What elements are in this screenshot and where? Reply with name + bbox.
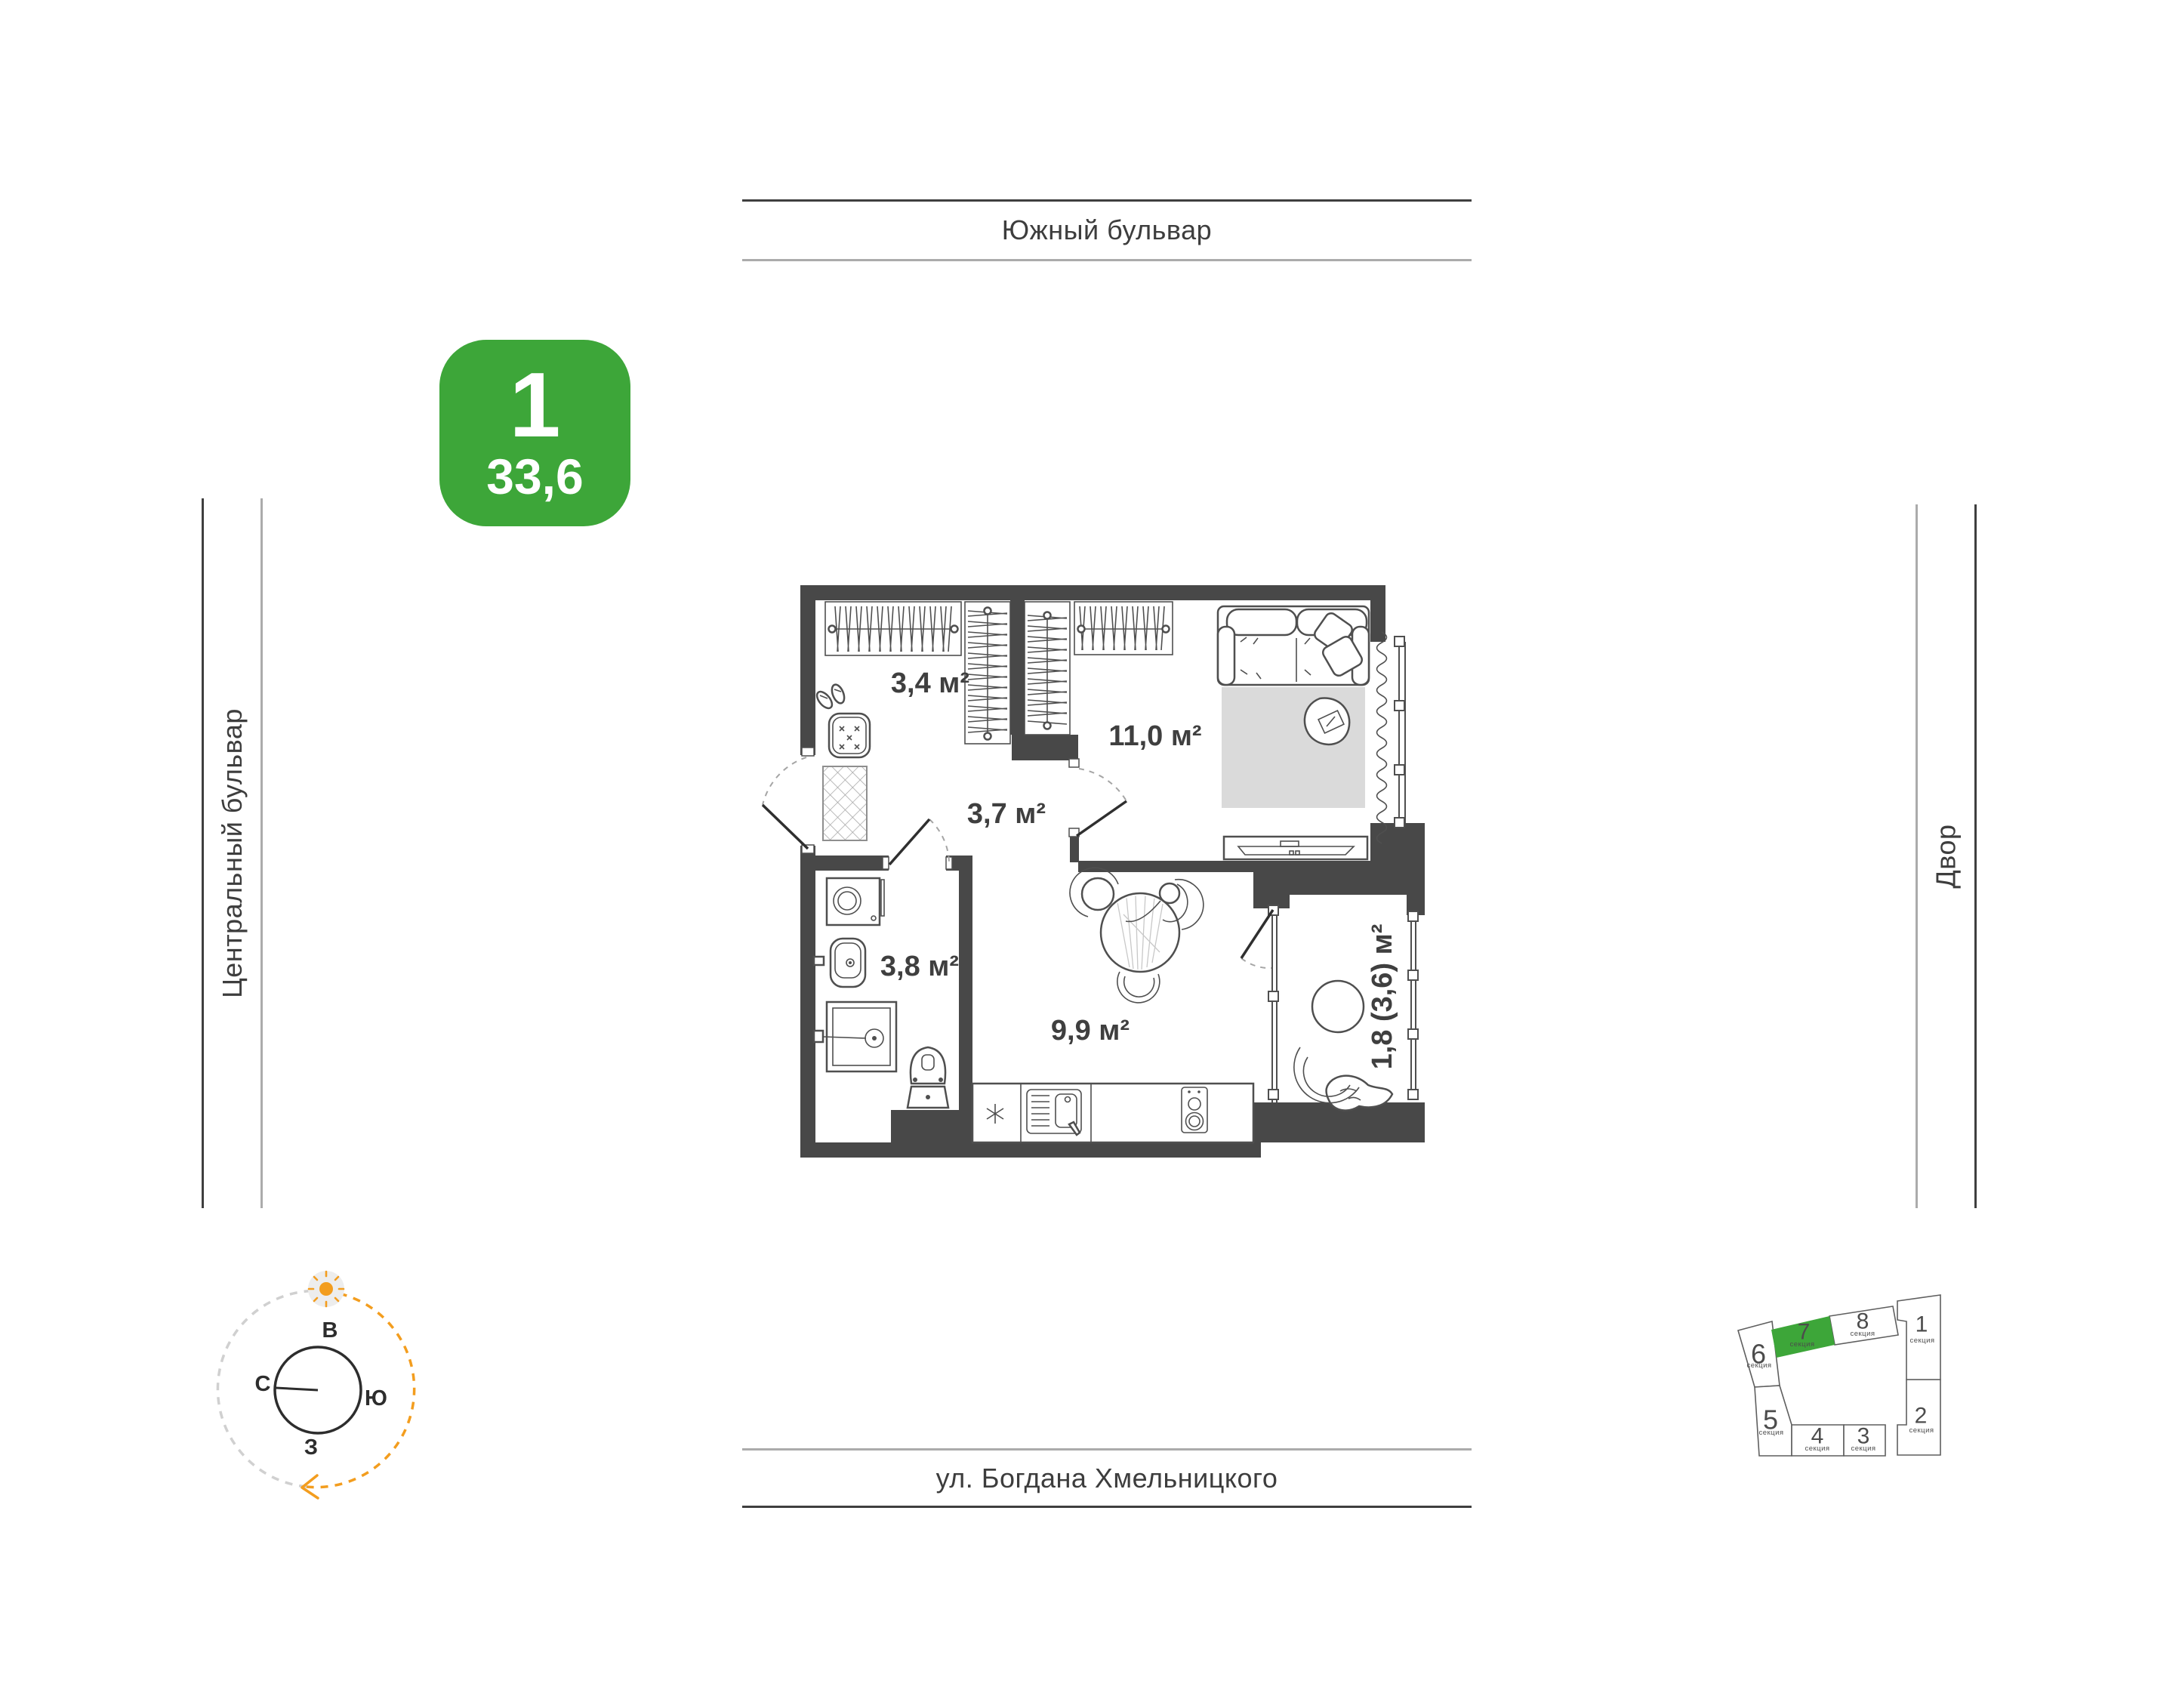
bathroom-sink xyxy=(814,939,865,987)
room-label-corridor: 3,7 м² xyxy=(967,798,1046,830)
balcony-window xyxy=(1408,911,1418,1100)
balcony-door xyxy=(1241,910,1273,968)
section-tile-8[interactable]: 8 секция xyxy=(1829,1306,1898,1345)
street-top-text: Южный бульвар xyxy=(1002,214,1212,246)
entrance-door xyxy=(763,748,814,853)
section-tile-7-highlighted[interactable]: 7 секция xyxy=(1771,1316,1835,1358)
svg-text:секция: секция xyxy=(1789,1340,1814,1349)
toilet xyxy=(908,1047,948,1108)
street-right-text: Двор xyxy=(1931,824,1962,888)
svg-text:1: 1 xyxy=(1916,1312,1928,1337)
section-tile-3[interactable]: 3 секция xyxy=(1844,1424,1885,1457)
room-label-hallway: 3,4 м² xyxy=(891,667,969,699)
street-label-left: Центральный бульвар xyxy=(202,498,263,1208)
svg-text:секция: секция xyxy=(1909,1426,1934,1435)
room-label-bathroom: 3,8 м² xyxy=(880,951,959,982)
badge-rooms-count: 1 xyxy=(510,359,561,451)
svg-text:секция: секция xyxy=(1851,1444,1875,1453)
street-left-text: Центральный бульвар xyxy=(217,708,248,998)
dining-set xyxy=(1070,868,1204,1003)
room-label-balcony: 1,8 (3,6) м² xyxy=(1367,924,1398,1070)
svg-text:секция: секция xyxy=(1850,1330,1875,1338)
badge-area: 33,6 xyxy=(486,451,583,503)
living-door xyxy=(1069,759,1127,837)
section-tile-1[interactable]: 1 секция xyxy=(1897,1295,1940,1380)
room-label-living: 11,0 м² xyxy=(1108,720,1201,752)
balcony-partition-glazing xyxy=(1268,905,1278,1102)
section-tile-2[interactable]: 2 секция xyxy=(1897,1380,1940,1455)
svg-text:секция: секция xyxy=(1758,1429,1783,1437)
wardrobe-niche xyxy=(1025,602,1070,735)
svg-text:секция: секция xyxy=(1805,1444,1829,1453)
sofa xyxy=(1218,606,1369,685)
svg-text:2: 2 xyxy=(1915,1404,1928,1429)
compass-south: Ю xyxy=(365,1386,387,1410)
doormat xyxy=(823,766,867,840)
slippers xyxy=(814,683,846,711)
bathroom-door xyxy=(883,819,952,869)
section-tile-5[interactable]: 5 секция xyxy=(1755,1386,1792,1456)
compass: В Ю З С xyxy=(204,1238,461,1540)
street-label-bottom: ул. Богдана Хмельницкого xyxy=(742,1448,1472,1508)
apartment-badge: 1 33,6 xyxy=(439,340,630,526)
curtain xyxy=(1377,632,1387,843)
street-label-right: Двор xyxy=(1916,504,1977,1208)
wardrobe-living xyxy=(1074,602,1173,655)
compass-east: В xyxy=(322,1318,338,1343)
wardrobe-hall-vertical xyxy=(965,602,1010,744)
tv-console xyxy=(1224,837,1367,859)
side-table xyxy=(1305,698,1349,745)
sun-icon xyxy=(308,1271,344,1307)
compass-north: С xyxy=(255,1372,271,1396)
street-label-top: Южный бульвар xyxy=(742,199,1472,261)
kitchen-counter xyxy=(972,1084,1253,1142)
shower xyxy=(814,1002,896,1071)
pouf xyxy=(829,714,870,757)
building-minimap: 6 секция 5 секция 4 секция 3 секция 2 се… xyxy=(1699,1276,1956,1510)
svg-text:секция: секция xyxy=(1909,1336,1934,1345)
svg-text:секция: секция xyxy=(1746,1361,1771,1370)
page-root: { "badge": { "rooms_count": "1", "area":… xyxy=(0,0,2176,1708)
room-label-kitchen: 9,9 м² xyxy=(1051,1015,1130,1047)
wardrobe-top xyxy=(825,602,961,655)
floorplan: 3,4 м² 11,0 м² 3,7 м² 3,8 м² 9,9 м² 1,8 … xyxy=(744,578,1442,1170)
section-tile-4[interactable]: 4 секция xyxy=(1792,1424,1844,1457)
street-bottom-text: ул. Богдана Хмельницкого xyxy=(936,1463,1278,1494)
compass-west: З xyxy=(304,1435,318,1460)
living-window xyxy=(1395,637,1405,828)
washing-machine xyxy=(827,878,884,925)
